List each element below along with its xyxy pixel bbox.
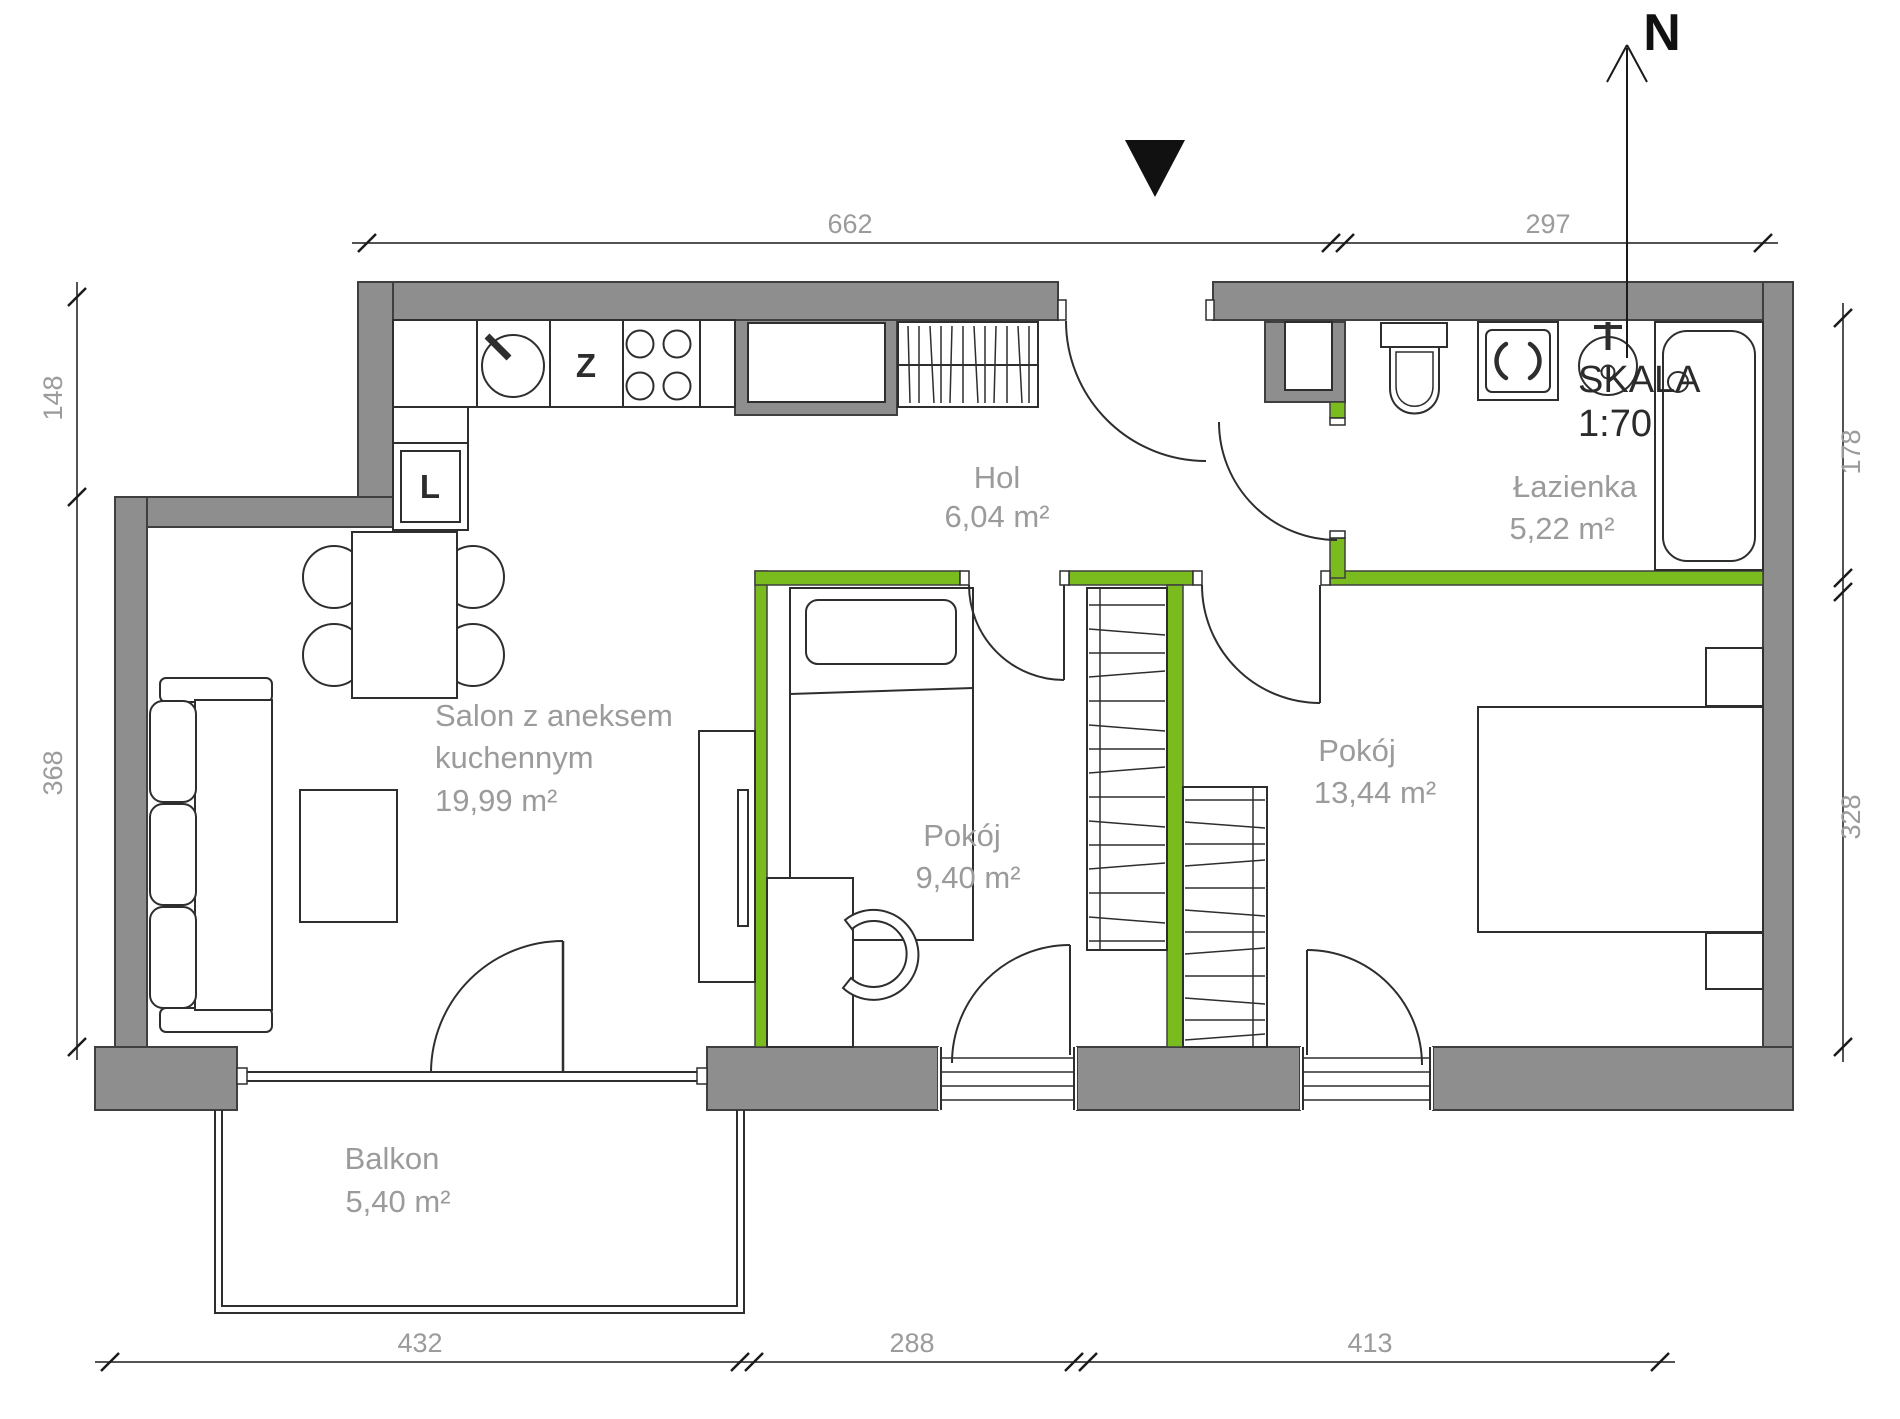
wardrobe-outline (1183, 787, 1267, 1047)
bathroom-door-arc (1219, 422, 1337, 540)
scale-label: SKALA (1578, 359, 1701, 401)
dim-left-1: 148 (38, 375, 68, 420)
wardrobe-outline (1087, 588, 1167, 950)
room-area-pokoj-small: 9,40 m² (915, 860, 1020, 895)
dim-top-1: 662 (827, 209, 872, 239)
jamb (1193, 571, 1202, 585)
dining-table (352, 532, 457, 698)
sofa-cushion (150, 907, 196, 1008)
wall-step (115, 497, 393, 527)
double-bed (1478, 707, 1763, 932)
desk (767, 878, 853, 1047)
fridge-label: L (420, 468, 440, 505)
entrance-door-arc (1066, 321, 1206, 461)
north-label: N (1643, 4, 1681, 62)
floor-plan-drawing: Z L (0, 0, 1900, 1419)
coffee-table (300, 790, 397, 922)
wall-bottom-a (95, 1047, 237, 1110)
room-area-hol: 6,04 m² (944, 499, 1049, 534)
jamb (237, 1068, 247, 1084)
room-area-salon: 19,99 m² (435, 783, 557, 818)
wall-bottom-d (1433, 1047, 1793, 1110)
balcony-railing (215, 1110, 744, 1313)
green-wall-bath-stub (1330, 538, 1345, 578)
kitchen-counter-return (393, 407, 468, 443)
sofa (150, 678, 272, 1032)
small-room-window-sash (952, 945, 1070, 1063)
dim-left-2: 368 (38, 750, 68, 795)
hob-burner-icon (664, 331, 691, 358)
window-small-room (938, 1047, 1077, 1110)
wall-top-left (358, 282, 1058, 320)
washing-machine-icon (1478, 322, 1558, 400)
hob-burner-icon (664, 373, 691, 400)
sofa-armrest (160, 1008, 272, 1032)
small-room-door (969, 585, 1064, 680)
hall-closet (898, 322, 1038, 407)
wall-right (1763, 282, 1793, 1110)
dishwasher-label: Z (576, 347, 596, 384)
jamb (1058, 300, 1066, 320)
hob-burner-icon (627, 373, 654, 400)
sofa-cushion (150, 701, 196, 802)
sofa-armrest (160, 678, 272, 702)
dining-set (303, 532, 504, 698)
wardrobe-large-room (1183, 787, 1267, 1047)
niche-cabinet (748, 323, 885, 402)
room-area-pokoj-large: 13,44 m² (1314, 775, 1436, 810)
dim-bottom-1: 432 (397, 1328, 442, 1358)
dim-top-2: 297 (1525, 209, 1570, 239)
salon-furniture (150, 532, 755, 1032)
dim-bottom-2: 288 (889, 1328, 934, 1358)
hob-burner-icon (627, 331, 654, 358)
green-wall-rooms-divider (1167, 585, 1183, 1047)
wardrobe-small-room (1087, 588, 1167, 950)
jamb (1330, 418, 1345, 425)
wall-bottom-b (707, 1047, 938, 1110)
jamb (1330, 531, 1345, 538)
nightstand (1706, 933, 1763, 989)
bed-pillow (806, 600, 956, 664)
wall-bottom-c (1077, 1047, 1300, 1110)
green-wall-bath-bottom (1330, 571, 1763, 585)
room-area-lazienka: 5,22 m² (1509, 511, 1614, 546)
jamb (1060, 571, 1069, 585)
room-name-lazienka: Łazienka (1513, 469, 1638, 504)
green-wall-bath-piece (1330, 402, 1345, 418)
jamb (697, 1068, 707, 1084)
room-name-balkon: Balkon (345, 1141, 440, 1176)
room-name-hol: Hol (974, 460, 1021, 495)
dim-bottom-3: 413 (1347, 1328, 1392, 1358)
kitchen (393, 320, 885, 530)
shaft-inner (1285, 322, 1332, 390)
floor-plan-page: Z L (0, 0, 1900, 1419)
large-room-door (1202, 585, 1320, 703)
green-wall-hall-a (755, 571, 960, 585)
balcony-door (431, 941, 563, 1072)
room-name-salon-line1: Salon z aneksem (435, 698, 673, 733)
balcony-glazing (247, 1072, 697, 1081)
sofa-seat (195, 700, 272, 1010)
jamb (1206, 300, 1214, 320)
window-large-room (1300, 1047, 1433, 1110)
room-name-pokoj-small: Pokój (923, 818, 1001, 853)
wall-top-right (1213, 282, 1793, 320)
large-room-furniture (1183, 648, 1763, 1047)
nightstand (1706, 648, 1763, 706)
jamb (1321, 571, 1330, 585)
tv-icon (738, 790, 748, 926)
scale-value: 1:70 (1578, 403, 1652, 445)
jamb (960, 571, 969, 585)
green-wall-salon-divider (755, 571, 767, 1047)
room-name-salon-line2: kuchennym (435, 740, 594, 775)
wall-kitchen-left (358, 282, 393, 497)
entrance-marker-icon (1125, 140, 1185, 197)
green-wall-hall-b (1069, 571, 1193, 585)
room-area-balkon: 5,40 m² (345, 1184, 450, 1219)
toilet-icon (1381, 323, 1447, 414)
room-name-pokoj-large: Pokój (1318, 733, 1396, 768)
sofa-cushion (150, 804, 196, 905)
wall-left (115, 497, 147, 1047)
dim-right-1: 178 (1836, 429, 1866, 474)
dim-right-2: 328 (1836, 794, 1866, 839)
